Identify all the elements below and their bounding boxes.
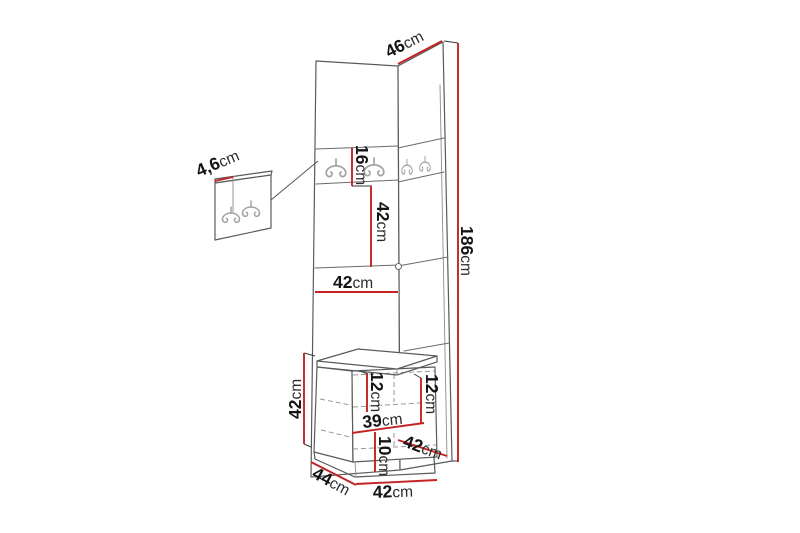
hook-board-face <box>215 175 271 240</box>
svg-text:42cm: 42cm <box>333 272 373 292</box>
dimension-diagram: 46cm 186cm 16cm 42cm 42cm 4,6cm 42cm 12c… <box>0 0 800 533</box>
svg-text:12cm: 12cm <box>422 374 442 414</box>
dimension-bench-inner-lower: 10cm <box>375 432 395 476</box>
svg-text:10cm: 10cm <box>375 436 395 476</box>
detail-leader-line <box>271 161 318 200</box>
dimension-hook-board-thickness: 4,6cm <box>193 145 242 181</box>
svg-text:4,6cm: 4,6cm <box>193 145 242 181</box>
hook-board-detail <box>215 161 318 240</box>
dimension-hook-strip-height: 16cm <box>352 145 372 186</box>
svg-text:186cm: 186cm <box>457 226 477 276</box>
dimension-bench-height: 42cm <box>285 353 315 447</box>
svg-text:42cm: 42cm <box>285 379 305 419</box>
dimension-bench-width: 42cm <box>356 480 437 502</box>
svg-text:12cm: 12cm <box>367 372 387 412</box>
bench-side-face <box>314 367 353 462</box>
svg-text:16cm: 16cm <box>352 145 372 185</box>
svg-text:42cm: 42cm <box>373 202 393 242</box>
svg-text:42cm: 42cm <box>372 481 413 502</box>
panel-joint-marker <box>396 264 402 270</box>
diagram-canvas: 46cm 186cm 16cm 42cm 42cm 4,6cm 42cm 12c… <box>0 0 800 533</box>
